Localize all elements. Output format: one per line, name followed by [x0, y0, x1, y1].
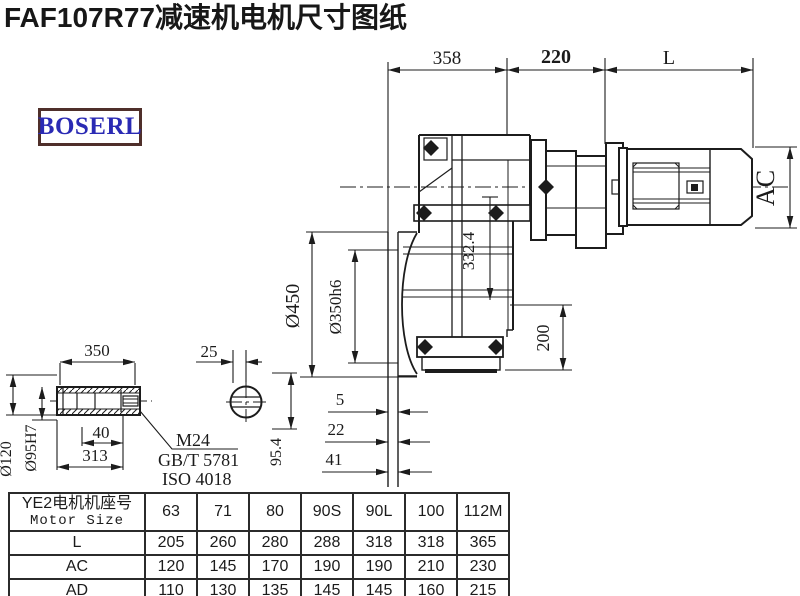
dim-label-25: 25	[201, 342, 218, 361]
standard-label-gbt: GB/T 5781	[158, 450, 239, 470]
output-flange-bell	[388, 232, 417, 487]
row-label-AC: AC	[9, 555, 145, 579]
dim-label-954: 95.4	[268, 438, 285, 466]
table-row-AC: AC 120 145 170 190 190 210 230	[9, 555, 509, 579]
table-header-row: YE2电机机座号 Motor Size 63 71 80 90S 90L 100…	[9, 493, 509, 531]
cell: 145	[353, 579, 405, 596]
dim-label-L: L	[663, 47, 675, 69]
motor-size-table: YE2电机机座号 Motor Size 63 71 80 90S 90L 100…	[8, 492, 510, 596]
row-label-AD: AD	[9, 579, 145, 596]
cell: 190	[301, 555, 353, 579]
cell: 135	[249, 579, 301, 596]
standard-label-iso: ISO 4018	[162, 469, 232, 489]
cell: 190	[353, 555, 405, 579]
flange-diameter-dims	[300, 232, 417, 377]
table-row-L: L 205 260 280 288 318 318 365	[9, 531, 509, 555]
column-header-71: 71	[197, 493, 249, 531]
column-header-80: 80	[249, 493, 301, 531]
cell: 120	[145, 555, 197, 579]
column-header-90l: 90L	[353, 493, 405, 531]
cell: 280	[249, 531, 301, 555]
dim-label-200: 200	[533, 325, 553, 352]
table-header-cn: YE2电机机座号	[10, 495, 144, 513]
row-label-L: L	[9, 531, 145, 555]
cell: 230	[457, 555, 509, 579]
cell: 160	[405, 579, 457, 596]
cell: 130	[197, 579, 249, 596]
table-row-AD: AD 110 130 135 145 145 160 215	[9, 579, 509, 596]
cell: 205	[145, 531, 197, 555]
cell: 215	[457, 579, 509, 596]
dim-label-350h6: Ø350h6	[326, 280, 345, 335]
dim-label-358: 358	[433, 48, 462, 69]
dim-label-450: Ø450	[282, 284, 304, 328]
motor	[612, 148, 752, 226]
dim-label-40: 40	[93, 423, 110, 442]
dim-label-41: 41	[326, 450, 343, 469]
dim-label-313: 313	[82, 446, 108, 465]
dim-label-120: Ø120	[0, 441, 15, 477]
column-header-63: 63	[145, 493, 197, 531]
dim-label-22: 22	[328, 420, 345, 439]
column-header-112m: 112M	[457, 493, 509, 531]
column-header-90s: 90S	[301, 493, 353, 531]
cell: 288	[301, 531, 353, 555]
dim-label-332: 332.4	[459, 231, 478, 270]
dim-label-5: 5	[336, 390, 345, 409]
thread-label-m24: M24	[176, 430, 210, 450]
dim-label-AC: AC	[751, 170, 780, 206]
input-adapter	[531, 140, 623, 248]
table-header-en: Motor Size	[10, 513, 144, 529]
cell: 210	[405, 555, 457, 579]
cell: 260	[197, 531, 249, 555]
cell: 318	[353, 531, 405, 555]
cell: 365	[457, 531, 509, 555]
dim-label-350: 350	[84, 341, 110, 360]
table-header-cell: YE2电机机座号 Motor Size	[9, 493, 145, 531]
cell: 318	[405, 531, 457, 555]
cell: 110	[145, 579, 197, 596]
column-header-100: 100	[405, 493, 457, 531]
cell: 170	[249, 555, 301, 579]
cell: 145	[301, 579, 353, 596]
dim-label-95h7: Ø95H7	[23, 424, 40, 471]
drawing-page: FAF107R77减速机电机尺寸图纸 BOSERL	[0, 0, 800, 596]
dim-label-220: 220	[541, 46, 571, 68]
cell: 145	[197, 555, 249, 579]
